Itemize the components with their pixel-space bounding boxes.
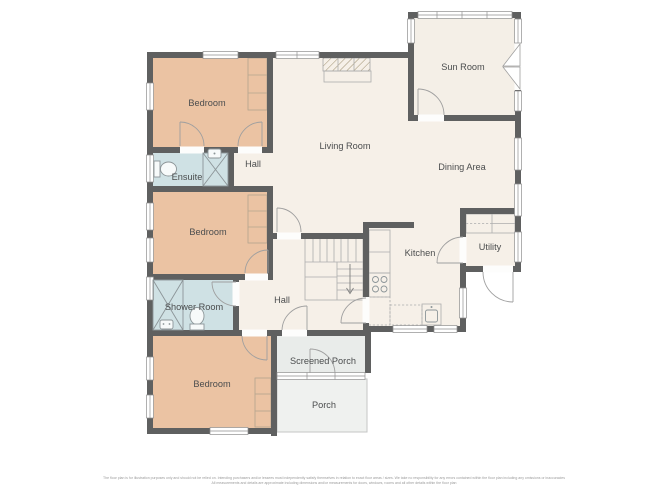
room-label-kitchen: Kitchen bbox=[405, 248, 436, 258]
floor-plan-drawing: Bedroom Ensuite Hall Living Room Sun Roo… bbox=[0, 0, 668, 501]
disclaimer-line-2: All measurements and details are approxi… bbox=[0, 481, 668, 486]
screened-porch-screens bbox=[277, 373, 365, 380]
room-label-sun-room: Sun Room bbox=[441, 62, 485, 72]
sink-icon bbox=[208, 149, 221, 158]
sink-icon bbox=[160, 320, 173, 329]
room-label-hall-lower: Hall bbox=[274, 295, 290, 305]
room-label-shower-room: Shower Room bbox=[165, 302, 224, 312]
disclaimer: The floor plan is for illustration purpo… bbox=[0, 476, 668, 486]
hall-upper-floor bbox=[228, 153, 273, 186]
room-label-bedroom-1: Bedroom bbox=[188, 98, 226, 108]
room-label-hall-upper: Hall bbox=[245, 159, 261, 169]
room-label-screened-porch: Screened Porch bbox=[290, 356, 356, 366]
screened-porch-floor bbox=[277, 336, 365, 373]
utility-floor bbox=[466, 214, 515, 266]
room-label-porch: Porch bbox=[312, 400, 336, 410]
room-label-bedroom-3: Bedroom bbox=[193, 379, 231, 389]
room-label-ensuite: Ensuite bbox=[172, 172, 203, 182]
room-label-living-room: Living Room bbox=[319, 141, 370, 151]
room-label-dining-area: Dining Area bbox=[438, 162, 486, 172]
room-label-utility: Utility bbox=[479, 242, 502, 252]
room-label-bedroom-2: Bedroom bbox=[189, 227, 227, 237]
floor-plan-page: Bedroom Ensuite Hall Living Room Sun Roo… bbox=[0, 0, 668, 501]
